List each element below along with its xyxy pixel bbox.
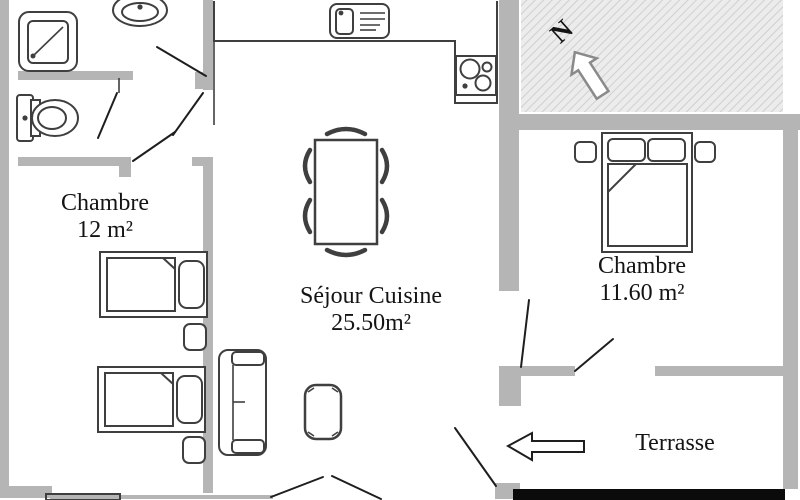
sofa-icon xyxy=(219,350,266,455)
stove-icon xyxy=(456,56,496,95)
single-bed-icon xyxy=(98,367,205,432)
room-label-terrasse: Terrasse xyxy=(610,430,740,457)
wall-bedroom-bottom-right xyxy=(655,366,783,376)
nightstand-icon xyxy=(183,437,205,463)
single-bed-icon xyxy=(100,252,207,317)
room-name: Chambre xyxy=(558,253,726,280)
room-label-chambre-left: Chambre 12 m² xyxy=(25,190,185,244)
door-swing-line xyxy=(271,477,323,497)
chair-icon xyxy=(382,200,387,232)
wall-wc-bottom xyxy=(18,157,128,166)
room-name: Séjour Cuisine xyxy=(277,283,465,310)
door-swing-line xyxy=(173,93,203,135)
door-swing-line xyxy=(521,300,529,367)
floor-plan-graphics xyxy=(0,0,800,500)
chair-icon xyxy=(305,150,310,182)
wall-jamb-block xyxy=(119,157,131,177)
door-swing-line xyxy=(157,47,206,76)
room-label-sejour-cuisine: Séjour Cuisine 25.50m² xyxy=(277,283,465,337)
floor-plan: Chambre 12 m² Séjour Cuisine 25.50m² Cha… xyxy=(0,0,800,500)
wall-left-outer xyxy=(0,0,9,490)
room-area: 12 m² xyxy=(25,217,185,244)
wall-door-block xyxy=(499,366,521,406)
chair-icon xyxy=(305,200,310,232)
room-name: Terrasse xyxy=(610,430,740,457)
door-swing-line xyxy=(133,132,175,161)
kitchen-sink-icon xyxy=(330,4,389,38)
coffee-table-icon xyxy=(305,385,341,439)
wall-right-outer xyxy=(783,114,798,489)
dining-table-icon xyxy=(315,140,377,244)
chair-icon xyxy=(382,150,387,182)
room-area: 11.60 m² xyxy=(558,280,726,307)
wall-bedroom-bottom-left xyxy=(521,366,575,376)
double-bed-icon xyxy=(602,133,692,252)
wall-bedroom-left xyxy=(499,0,519,291)
washbasin-icon xyxy=(113,0,167,26)
door-swing-line xyxy=(98,93,117,138)
wall-under-hatch xyxy=(499,114,800,130)
toilet-icon xyxy=(17,95,78,141)
wall-bottom-thin xyxy=(50,495,273,499)
wall-bath-wc xyxy=(18,71,133,80)
nightstand-icon xyxy=(184,324,206,350)
terrace-edge-bar xyxy=(513,489,785,500)
wall-bottom-left-block xyxy=(0,486,52,498)
chair-icon xyxy=(327,250,365,255)
entrance-arrow-icon xyxy=(508,433,584,460)
door-swing-line xyxy=(575,339,613,371)
room-name: Chambre xyxy=(25,190,185,217)
nightstand-icon xyxy=(575,142,596,162)
room-area: 25.50m² xyxy=(277,310,465,337)
wall-center-top xyxy=(203,0,213,90)
door-swing-line xyxy=(332,476,381,499)
nightstand-icon xyxy=(695,142,715,162)
chair-icon xyxy=(327,129,365,134)
shower-icon xyxy=(19,12,77,71)
door-swing-line xyxy=(455,428,496,486)
room-label-chambre-right: Chambre 11.60 m² xyxy=(558,253,726,307)
